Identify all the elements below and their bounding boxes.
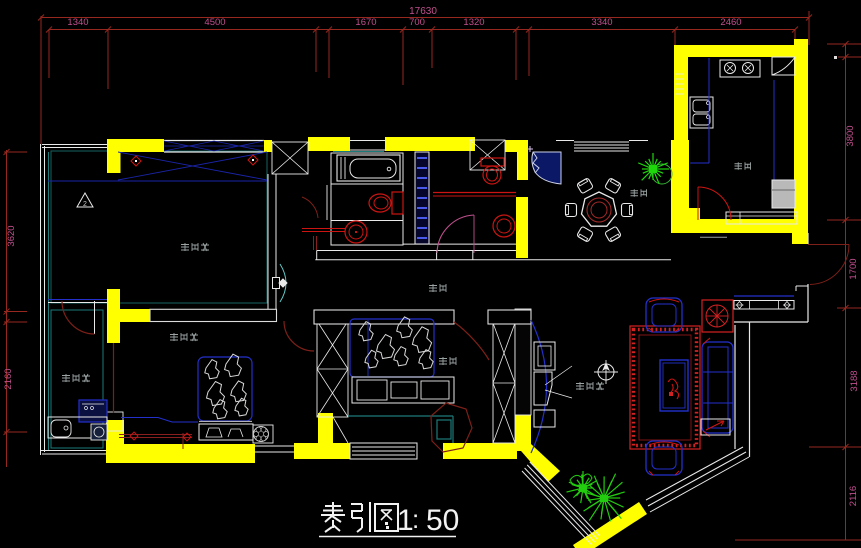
svg-text:1320: 1320 [463,17,484,28]
svg-text:3800: 3800 [845,125,856,146]
svg-text:1670: 1670 [355,17,376,28]
svg-text:3340: 3340 [591,17,612,28]
svg-text:4500: 4500 [204,17,225,28]
svg-text:17630: 17630 [409,6,437,17]
svg-text:2160: 2160 [3,368,14,389]
svg-text:700: 700 [409,17,425,28]
svg-text:2460: 2460 [720,17,741,28]
svg-text:1340: 1340 [67,17,88,28]
svg-text:2116: 2116 [848,486,859,506]
svg-text:50: 50 [426,504,459,537]
svg-text:3620: 3620 [6,225,17,246]
svg-text:3188: 3188 [849,370,860,391]
svg-text::: : [412,504,419,534]
svg-text:2: 2 [83,201,87,208]
svg-text:1700: 1700 [848,258,859,279]
